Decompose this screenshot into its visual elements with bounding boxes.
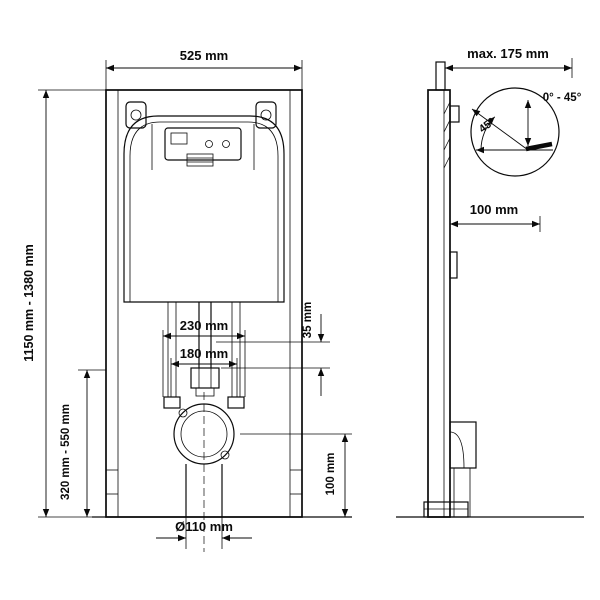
dim-outlet-height-range: 320 mm - 550 mm [60, 370, 106, 517]
flush-lever [526, 144, 552, 149]
dim-drain-diameter: Ø110 mm [156, 519, 252, 538]
side-view-foot [424, 502, 468, 517]
dim-stud-spacing-inner: 180 mm [171, 346, 237, 397]
angle-value-label: 45° [477, 116, 498, 136]
wc-frame-technical-drawing: 525 mm 1150 mm - 1380 mm 320 mm - 550 mm… [0, 0, 600, 600]
lever-angle-detail: 45° 0° - 45° [471, 88, 582, 176]
dim-wall-distance: 100 mm [450, 202, 540, 232]
wall-distance-label: 100 mm [470, 202, 518, 217]
dim-drain-height: 100 mm [240, 434, 352, 517]
side-view-frame [428, 62, 459, 517]
dim-front-width: 525 mm [106, 48, 302, 90]
wall-fixing-tabs [126, 102, 276, 128]
angle-range-label: 0° - 45° [543, 92, 582, 104]
cistern [124, 116, 284, 302]
height-range-label: 1150 mm - 1380 mm [22, 244, 36, 361]
dim-offset-35: 35 mm [216, 302, 330, 396]
drain-height-label: 100 mm [325, 453, 337, 496]
offset-35-label: 35 mm [302, 302, 314, 338]
dim-max-depth: max. 175 mm [445, 46, 572, 78]
technical-drawing-canvas: 525 mm 1150 mm - 1380 mm 320 mm - 550 mm… [0, 0, 600, 600]
outlet-height-range-label: 320 mm - 550 mm [60, 404, 72, 500]
side-view-drain-elbow [450, 422, 476, 517]
drain-diameter-label: Ø110 mm [175, 519, 233, 534]
stud-spacing-inner-label: 180 mm [180, 346, 228, 361]
stud-spacing-outer-label: 230 mm [180, 318, 228, 333]
front-width-label: 525 mm [180, 48, 228, 63]
flush-mechanism [165, 128, 241, 166]
max-depth-label: max. 175 mm [467, 46, 549, 61]
